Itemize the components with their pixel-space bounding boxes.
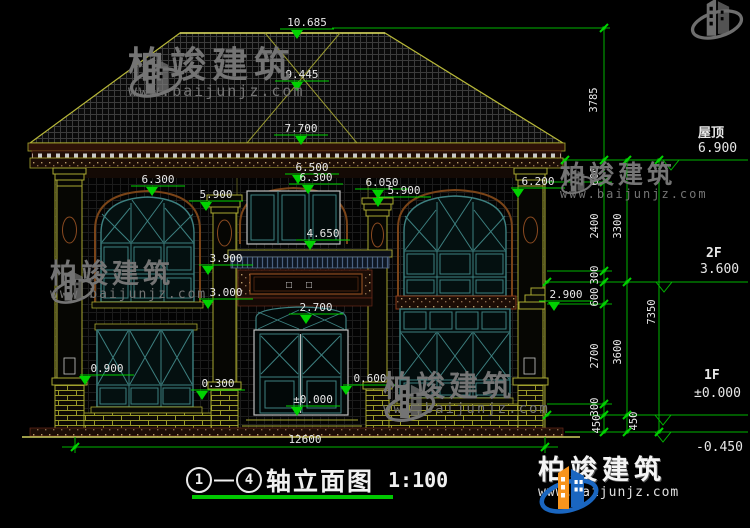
dimension-label: 300 [589, 398, 601, 417]
dimension-label: 0.600 [353, 372, 386, 385]
dimension-label: 0.900 [90, 362, 123, 375]
dimension-label: 9.445 [285, 68, 318, 81]
elevation-marker-triangle [548, 302, 560, 311]
dimension-label: 600 [589, 167, 601, 186]
title-underline [192, 495, 393, 499]
dimension-label: 0.300 [201, 377, 234, 390]
elevation-drawing: □□ [0, 0, 750, 528]
dimension-tick-dot [626, 281, 629, 284]
floor2-label: 2F [706, 246, 722, 261]
axis-bubble-start: 1 [186, 467, 212, 493]
axis-dash: — [214, 469, 234, 492]
dimension-tick-dot [603, 270, 606, 273]
dimension-label: 3600 [612, 339, 624, 364]
dimension-label: 6.300 [141, 173, 174, 186]
dimension-tick-dot [74, 446, 77, 449]
dimension-tick-dot [546, 281, 549, 284]
title-scale: 1:100 [388, 468, 448, 492]
dimension-tick-dot [603, 159, 606, 162]
dimension-label: 2.700 [299, 301, 332, 314]
dimension-tick-dot [658, 159, 661, 162]
dimension-label: 2400 [589, 213, 601, 238]
ground-level-value: -0.450 [696, 440, 743, 455]
roof-level-label: 屋顶 [698, 122, 724, 141]
brand-logo-block: 柏竣建筑 www.baijunjz.com [538, 456, 679, 500]
dimension-label: 600 [589, 288, 601, 307]
window-right-1f [389, 309, 518, 437]
dimension-tick-dot [603, 414, 606, 417]
cad-canvas: □□ [0, 0, 750, 528]
axis-bubble-end: 4 [236, 467, 262, 493]
dimension-tick-dot [546, 414, 549, 417]
dimension-label: 3.000 [209, 286, 242, 299]
floor2-value: 3.600 [700, 262, 739, 277]
dimension-label: 3785 [588, 87, 600, 112]
dimension-label: 300 [589, 266, 601, 285]
pilaster-right-corner [513, 168, 548, 437]
dimension-label: 7350 [646, 299, 658, 324]
dimension-tick-dot [603, 181, 606, 184]
dimension-label: 6.200 [521, 175, 554, 188]
dimension-tick-dot [603, 303, 606, 306]
pilaster-left-corner [52, 168, 87, 437]
baijun-logo-icon [686, 0, 748, 46]
dimension-label: 450 [628, 412, 640, 431]
dimension-tick-dot [564, 159, 567, 162]
dimension-tick-dot [603, 27, 606, 30]
svg-text:□□: □□ [286, 280, 326, 291]
drawing-title: 1 — 4 轴立面图 1:100 [186, 462, 448, 498]
dimension-label: 3.900 [209, 252, 242, 265]
dimension-tick-dot [603, 403, 606, 406]
dimension-label: 4.650 [306, 227, 339, 240]
dimension-label: ±0.000 [293, 393, 333, 406]
dimension-label: 3300 [612, 213, 624, 238]
dimension-tick-dot [626, 159, 629, 162]
floor1-label: 1F [704, 368, 720, 383]
dimension-tick-dot [544, 446, 547, 449]
dimension-label: 5.900 [387, 184, 420, 197]
window-left-1f [84, 324, 211, 437]
dimension-tick-dot [603, 431, 606, 434]
title-text: 轴立面图 [266, 462, 374, 498]
floor1-value: ±0.000 [694, 386, 741, 401]
dimension-label: 10.685 [287, 16, 327, 29]
dimension-tick-dot [603, 281, 606, 284]
dimension-label: 12600 [288, 433, 321, 446]
dimension-label: 2700 [589, 343, 601, 368]
dimension-tick-dot [658, 431, 661, 434]
dimension-label: 7.700 [284, 122, 317, 135]
dimension-tick-dot [626, 431, 629, 434]
baijun-logo-color-icon [538, 456, 602, 522]
roof-level-value: 6.900 [698, 141, 737, 156]
dimension-label: 5.900 [199, 188, 232, 201]
dimension-label: 6.300 [299, 171, 332, 184]
dimension-tick-dot [626, 414, 629, 417]
dimension-label: 2.900 [549, 288, 582, 301]
